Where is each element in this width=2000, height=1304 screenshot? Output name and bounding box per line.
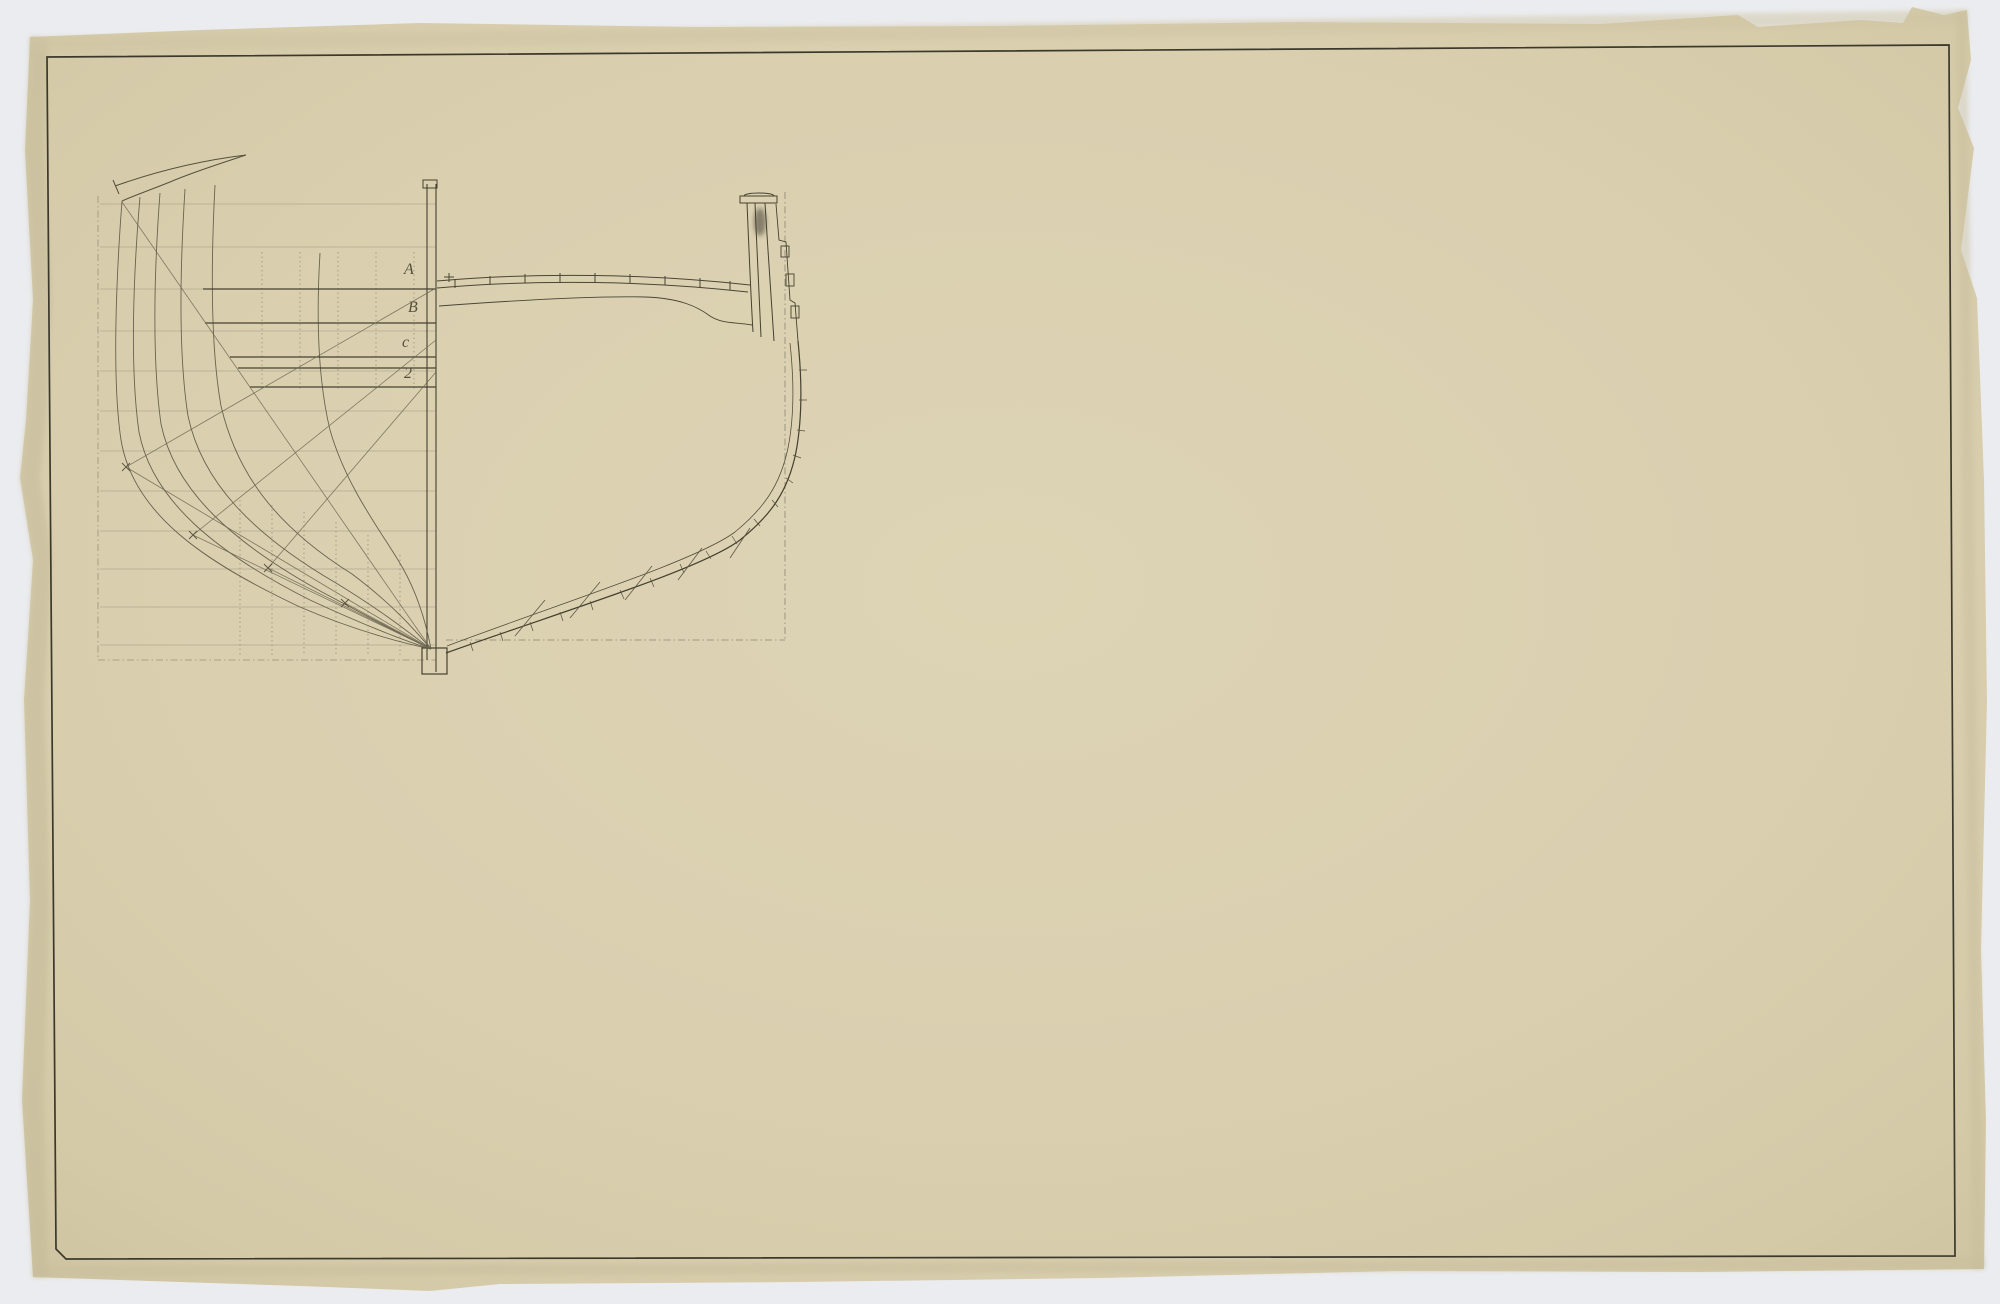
svg-text:2: 2 — [404, 365, 412, 382]
svg-text:c: c — [402, 334, 409, 351]
svg-text:A: A — [403, 261, 414, 278]
